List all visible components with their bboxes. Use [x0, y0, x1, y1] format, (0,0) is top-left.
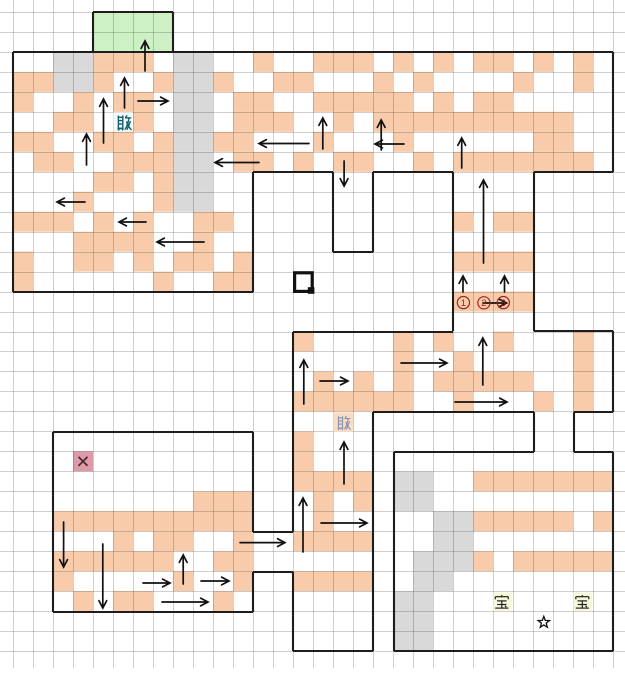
svg-text:3: 3	[501, 298, 506, 309]
svg-text:2: 2	[481, 298, 486, 309]
svg-text:1: 1	[461, 298, 466, 309]
